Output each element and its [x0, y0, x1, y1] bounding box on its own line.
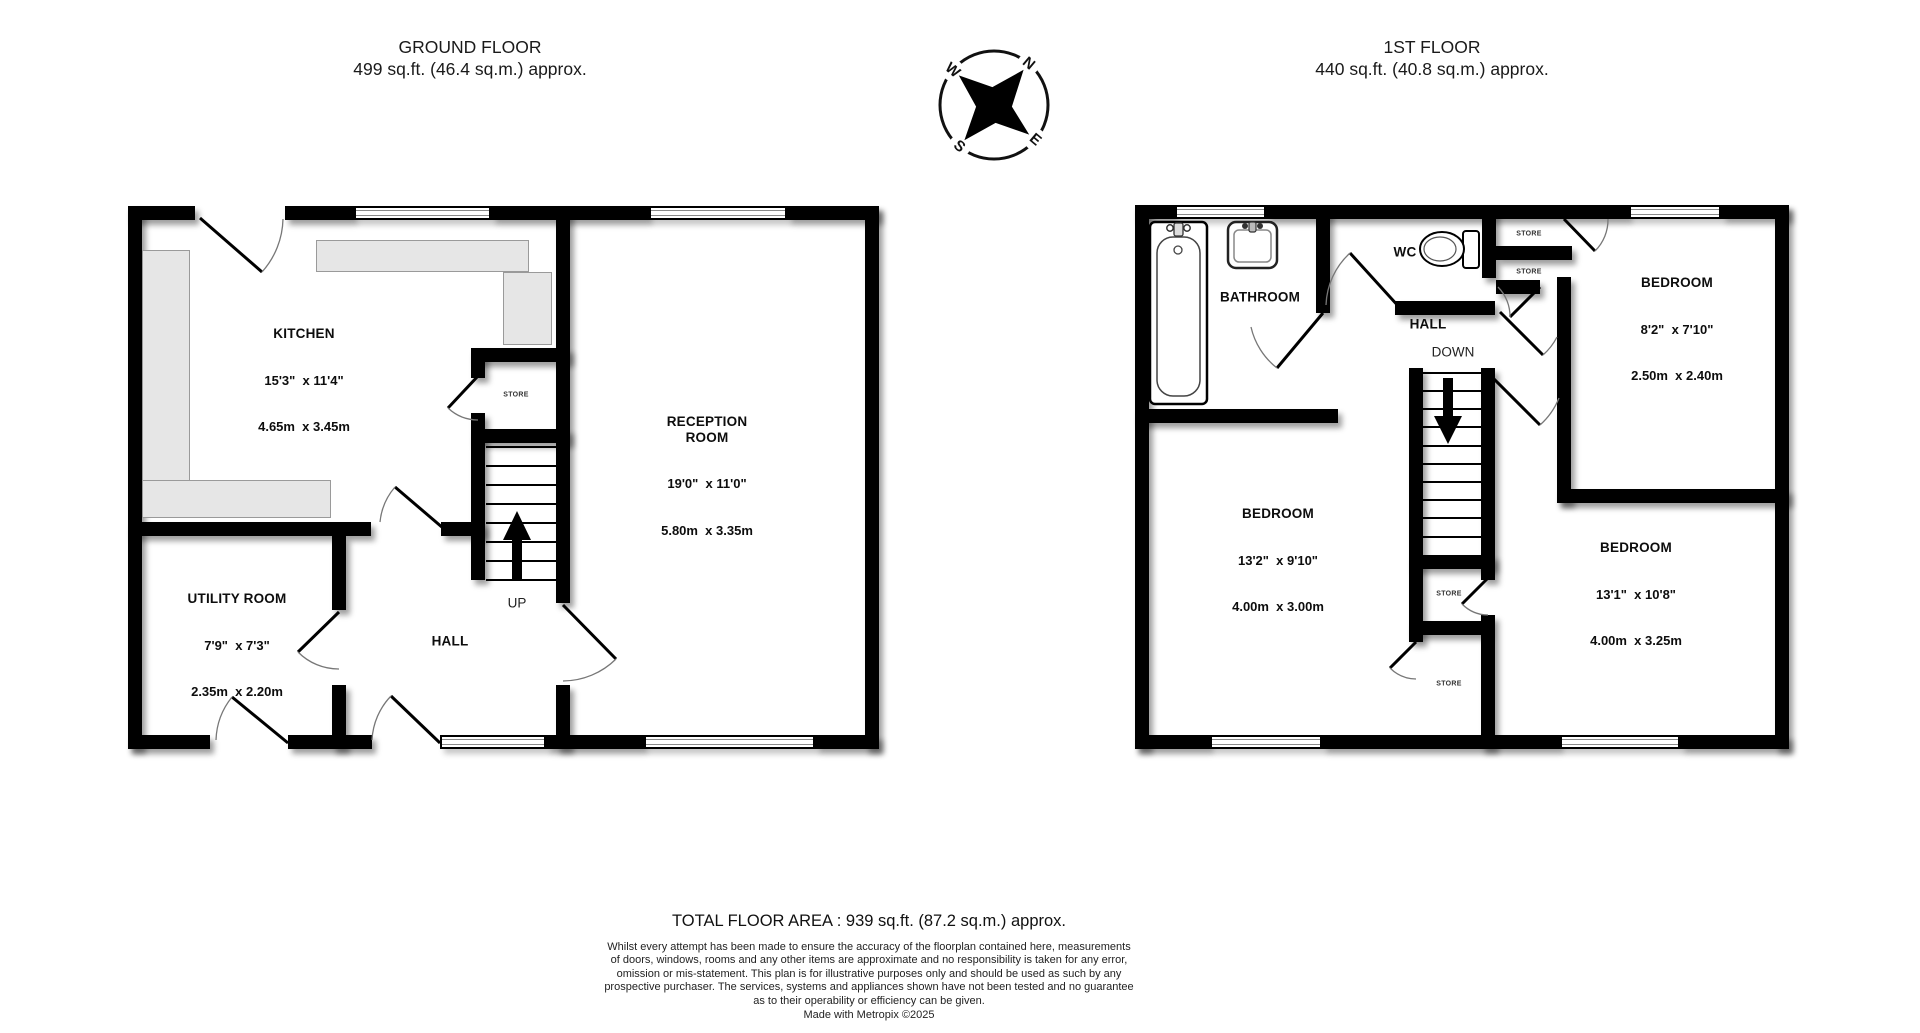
wall-kitchen-reception-divider	[556, 206, 570, 603]
compass-east-label: E	[1026, 130, 1045, 149]
wall-stairs-bottom	[1409, 555, 1495, 569]
room-label-utility: UTILITY ROOM 7'9" x 7'3" 2.35m x 2.20m	[188, 560, 287, 731]
store-label: STORE	[1516, 269, 1542, 276]
kitchen-counter	[142, 480, 331, 518]
wall-segment	[815, 735, 879, 749]
first-floor-title: 1ST FLOOR 440 sq.ft. (40.8 sq.m.) approx…	[1192, 36, 1672, 80]
window	[1210, 735, 1322, 749]
stairs-first	[1423, 373, 1481, 537]
room-label-bedroom-2: BEDROOM 13'2" x 9'10" 4.00m x 3.00m	[1232, 475, 1324, 646]
stairs-down-arrow-icon	[1434, 378, 1462, 444]
wall-segment	[556, 685, 570, 749]
wall-store-divider	[1496, 280, 1540, 294]
wall-store-top	[471, 348, 570, 362]
first-floor-area: 440 sq.ft. (40.8 sq.m.) approx.	[1192, 58, 1672, 80]
window	[649, 206, 787, 220]
ground-floor-title: GROUND FLOOR 499 sq.ft. (46.4 sq.m.) app…	[230, 36, 710, 80]
wall-segment	[1481, 615, 1495, 749]
kitchen-counter	[142, 250, 190, 518]
wall-stairs-right	[1481, 368, 1495, 580]
wall-segment	[865, 206, 879, 749]
wall-segment	[491, 206, 649, 220]
wall-segment	[1135, 205, 1149, 749]
wall-wc-right	[1482, 205, 1496, 278]
stairs-down-label: DOWN	[1432, 345, 1475, 360]
disclaimer-line: Whilst every attempt has been made to en…	[369, 941, 1369, 954]
toilet-icon	[1420, 231, 1479, 268]
floorplan-canvas: GROUND FLOOR 499 sq.ft. (46.4 sq.m.) app…	[0, 0, 1920, 1033]
wall-bathroom-right	[1316, 205, 1330, 313]
window	[644, 735, 815, 749]
wall-segment	[1775, 205, 1789, 749]
wall-stairs-left	[1409, 368, 1423, 642]
store-label: STORE	[503, 392, 529, 399]
ground-floor-area: 499 sq.ft. (46.4 sq.m.) approx.	[230, 58, 710, 80]
wall-segment	[128, 206, 142, 749]
kitchen-counter	[503, 272, 552, 345]
room-label-kitchen: KITCHEN 15'3" x 11'4" 4.65m x 3.45m	[258, 295, 350, 466]
wall-segment	[1135, 735, 1210, 749]
room-label-hall-ground: HALL	[432, 602, 469, 680]
wall-kitchen-hall-divider	[128, 522, 371, 536]
wall-segment	[288, 735, 372, 749]
wall-store-divider	[1496, 246, 1572, 260]
room-label-bedroom-1: BEDROOM 8'2" x 7'10" 2.50m x 2.40m	[1631, 244, 1723, 415]
wall-utility-divider	[332, 536, 346, 610]
wall-segment	[1409, 621, 1488, 635]
store-label: STORE	[1436, 681, 1462, 688]
wall-segment	[332, 685, 346, 749]
kitchen-counter	[316, 240, 529, 272]
compass-icon: N E S W	[940, 51, 1048, 159]
window	[1560, 735, 1680, 749]
wall-segment	[285, 206, 354, 220]
wall-store-bottom	[471, 429, 570, 443]
wall-bedroom1-left	[1557, 277, 1571, 503]
window	[1629, 205, 1721, 219]
store-label: STORE	[1436, 591, 1462, 598]
room-label-bedroom-3: BEDROOM 13'1" x 10'8" 4.00m x 3.25m	[1590, 509, 1682, 680]
window	[1175, 205, 1266, 219]
wall-segment	[1322, 735, 1560, 749]
disclaimer-line: omission or mis-statement. This plan is …	[369, 968, 1369, 981]
store-label: STORE	[1516, 231, 1542, 238]
compass-north-label: N	[1019, 54, 1038, 74]
disclaimer-line: prospective purchaser. The services, sys…	[369, 981, 1369, 994]
window	[354, 206, 491, 220]
first-floor-title-line: 1ST FLOOR	[1192, 36, 1672, 58]
wall-segment	[128, 735, 210, 749]
window	[440, 735, 546, 749]
room-label-reception: RECEPTION ROOM 19'0" x 11'0" 5.80m x 3.3…	[661, 383, 753, 569]
wall-bedroom1-bottom	[1557, 489, 1789, 503]
total-floor-area: TOTAL FLOOR AREA : 939 sq.ft. (87.2 sq.m…	[369, 912, 1369, 931]
wall-bathroom-bottom	[1135, 409, 1338, 423]
compass-west-label: W	[942, 59, 964, 82]
footer: TOTAL FLOOR AREA : 939 sq.ft. (87.2 sq.m…	[369, 912, 1369, 1022]
metropix-credit: Made with Metropix ©2025	[369, 1009, 1369, 1022]
wall-segment	[1680, 735, 1789, 749]
bathtub-icon	[1150, 222, 1207, 404]
disclaimer-line: as to their operability or efficiency ca…	[369, 995, 1369, 1008]
disclaimer-line: of doors, windows, rooms and any other i…	[369, 954, 1369, 967]
room-label-wc: WC	[1392, 213, 1419, 291]
wall-stairs-left	[471, 443, 485, 580]
compass-south-label: S	[950, 137, 969, 156]
stairs-ground	[486, 447, 556, 580]
stairs-up-label: UP	[508, 596, 527, 611]
stairs-up-arrow-icon	[503, 511, 531, 580]
ground-floor-title-line: GROUND FLOOR	[230, 36, 710, 58]
room-label-bathroom: BATHROOM	[1220, 258, 1300, 336]
